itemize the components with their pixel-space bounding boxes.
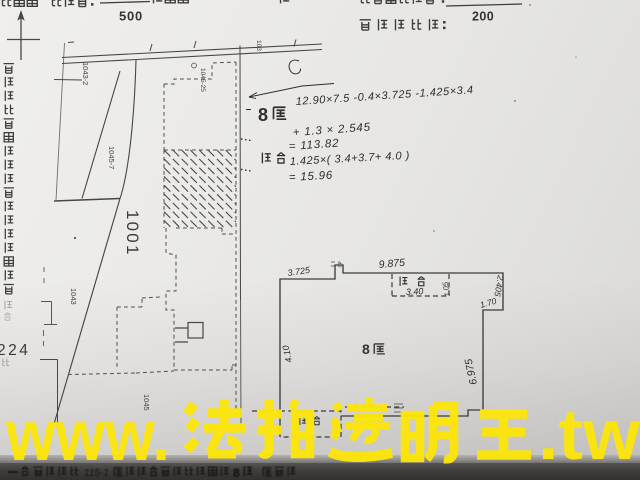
svg-text:115-1: 115-1 (84, 468, 109, 479)
svg-text:= 15.96: = 15.96 (289, 170, 334, 184)
svg-text:6.975: 6.975 (463, 358, 480, 386)
svg-text:3.725: 3.725 (287, 265, 312, 278)
svg-text:.tw: .tw (538, 396, 640, 475)
svg-text:103: 103 (255, 40, 262, 51)
svg-text:1043: 1043 (69, 288, 78, 305)
svg-text:1.05: 1.05 (440, 280, 452, 297)
svg-text:8: 8 (258, 105, 268, 125)
svg-text:8: 8 (362, 341, 370, 357)
svg-text:4.10: 4.10 (281, 344, 294, 363)
svg-text:12.90×7.5 -0.4×3.725 -1.425×3.: 12.90×7.5 -0.4×3.725 -1.425×3.4 (295, 84, 474, 108)
svg-text:www.: www. (5, 397, 170, 476)
svg-text:1045-25: 1045-25 (199, 68, 206, 92)
svg-text:= 113.82: = 113.82 (288, 137, 339, 153)
svg-text:1043-2: 1043-2 (81, 62, 90, 85)
svg-text:40: 40 (335, 261, 342, 269)
svg-text:200: 200 (472, 10, 494, 24)
svg-text:1001: 1001 (123, 210, 142, 257)
svg-text:224: 224 (0, 342, 30, 359)
svg-text:9.875: 9.875 (378, 257, 405, 271)
svg-text:8: 8 (233, 466, 240, 480)
svg-text:1.70: 1.70 (479, 296, 498, 310)
svg-text:1.425×( 3.4+3.7+ 4.0 ): 1.425×( 3.4+3.7+ 4.0 ) (290, 150, 411, 168)
svg-text:1045-7: 1045-7 (107, 146, 116, 169)
svg-text:+ 1.3 × 2.545: + 1.3 × 2.545 (292, 122, 371, 139)
svg-text:2.405: 2.405 (492, 274, 506, 298)
svg-text:3.40: 3.40 (406, 286, 424, 297)
svg-text:500: 500 (119, 9, 143, 24)
